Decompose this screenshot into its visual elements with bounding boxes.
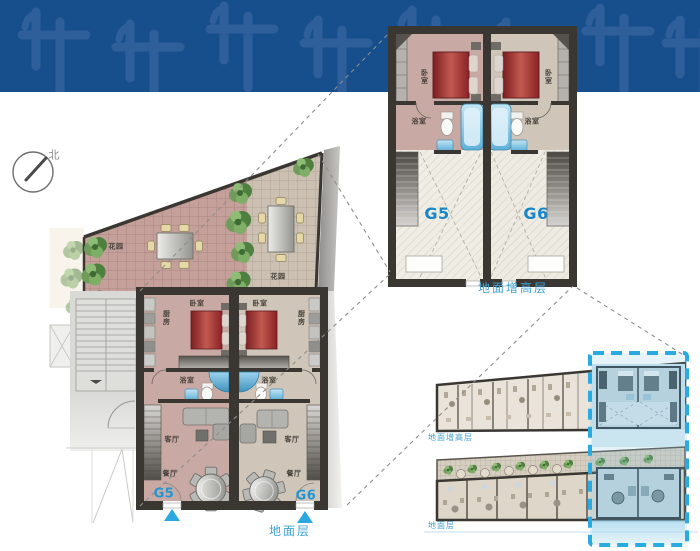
bedroom-label-raised-g5: 卧室	[421, 69, 428, 85]
brochure-page: 北 花园 花园 卧室 卧室 厨房 厨房 浴室 浴室 客厅 客厅 餐厅 餐厅 G5…	[0, 0, 700, 551]
bathroom-label-g6: 浴室	[262, 378, 277, 385]
common-stairwell	[62, 291, 142, 525]
unit-label-g5-raised: G5	[424, 206, 449, 222]
bedroom-label-g5: 卧室	[190, 301, 205, 308]
unit-label-g6-ground: G6	[296, 490, 317, 503]
raised-floor-caption: 地面增高层	[478, 282, 548, 294]
unit-label-g5-ground: G5	[154, 488, 175, 501]
dining-room-label-g6: 餐厅	[287, 471, 302, 478]
living-room-label-g6: 客厅	[285, 437, 300, 444]
raised-floor-plan	[388, 26, 577, 287]
dining-room-label-g5: 餐厅	[163, 471, 178, 478]
entrance-marker-g5	[164, 509, 180, 521]
entrance-marker-g6	[297, 511, 313, 523]
garden-label-g5: 花园	[109, 244, 124, 251]
compass-north-label: 北	[49, 150, 60, 161]
header-band	[0, 0, 700, 106]
kitchen-label-g5: 厨房	[163, 310, 170, 326]
unit-highlight-box	[590, 353, 687, 545]
overview-ground-caption: 地面层	[428, 522, 455, 530]
bedroom-label-g6: 卧室	[253, 301, 268, 308]
bedroom-label-raised-g6: 卧室	[545, 69, 552, 85]
bathroom-label-raised-g5: 浴室	[412, 119, 427, 126]
kitchen-label-g6: 厨房	[298, 310, 305, 326]
main-plan-garden	[81, 153, 322, 310]
bathroom-label-g5: 浴室	[180, 378, 195, 385]
garden-label-g6: 花园	[271, 274, 286, 281]
compass	[13, 152, 53, 192]
floorplan-graphics	[0, 0, 700, 551]
ground-floor-caption: 地面层	[269, 525, 311, 537]
unit-label-g6-raised: G6	[523, 206, 548, 222]
overview-raised-caption: 地面增高层	[428, 434, 473, 442]
bathroom-label-raised-g6: 浴室	[525, 119, 540, 126]
living-room-label-g5: 客厅	[165, 437, 180, 444]
